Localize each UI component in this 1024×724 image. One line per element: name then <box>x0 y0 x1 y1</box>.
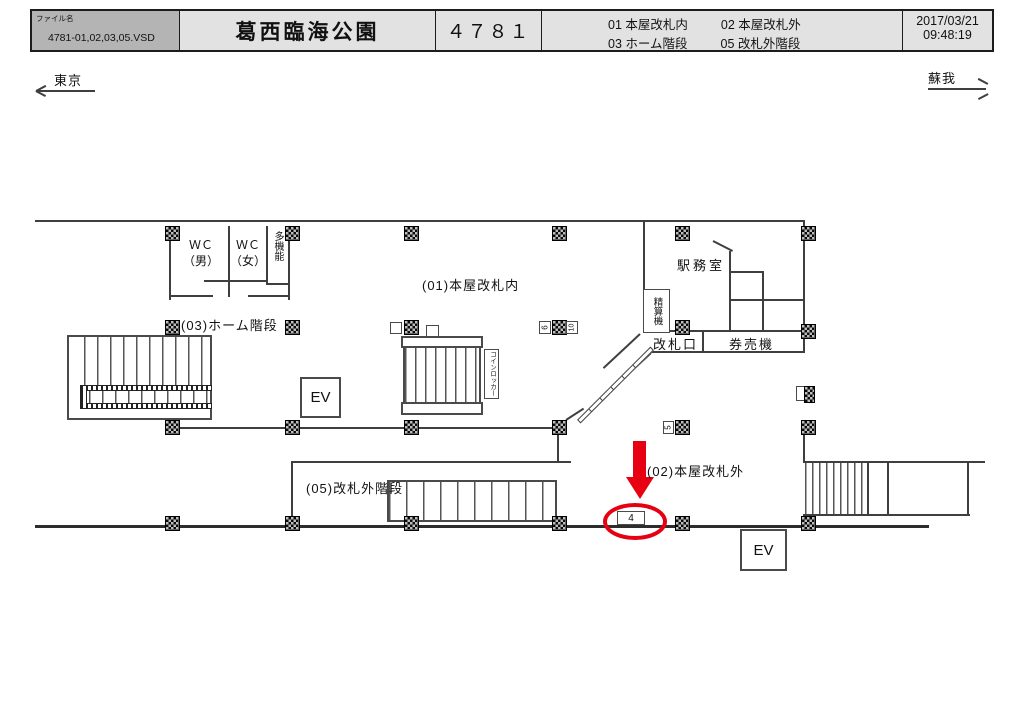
highlight-arrow-head <box>626 477 654 499</box>
ad-panel-box-6: 6 <box>539 321 551 334</box>
office-partition-wall <box>713 240 734 252</box>
highlight-ellipse <box>603 503 667 540</box>
column-pillar <box>552 226 567 241</box>
stair-landing-divider <box>867 461 869 516</box>
wc-women-line1: ＷＣ <box>226 237 270 253</box>
direction-left-arrow-line <box>38 90 95 92</box>
board-number: ４７８１ <box>436 11 542 50</box>
location-name: 改札外階段 <box>738 37 801 51</box>
office-partition-wall <box>729 271 764 273</box>
stair-handrail <box>80 403 212 409</box>
column-pillar <box>285 516 300 531</box>
column-pillar <box>552 516 567 531</box>
central-stairs-steps <box>403 348 481 403</box>
column-pillar <box>404 226 419 241</box>
location-name: 本屋改札外 <box>738 18 801 32</box>
direction-right-arrow-line <box>928 88 986 90</box>
direction-right-label: 蘇我 <box>928 68 956 87</box>
time-value: 09:48:19 <box>903 28 992 42</box>
station-office-label: 駅務室 <box>677 255 725 274</box>
direction-right-arrowhead <box>978 78 988 84</box>
datetime-cell: 2017/03/21 09:48:19 <box>903 11 992 50</box>
wc-wall <box>248 295 290 297</box>
file-name-cell: ファイル名 4781-01,02,03,05.VSD <box>32 11 180 50</box>
column-pillar <box>801 226 816 241</box>
ad-panel-number: 10 <box>568 324 575 332</box>
highlight-arrow-shaft <box>633 441 646 477</box>
location-code: 03 <box>608 37 622 51</box>
column-pillar <box>552 420 567 435</box>
ticket-gate-machine <box>632 347 654 369</box>
wall <box>803 432 805 463</box>
location-code: 01 <box>608 18 622 32</box>
coin-locker-box: コインロッカー <box>484 349 499 399</box>
wall <box>557 433 559 463</box>
wall <box>35 220 805 222</box>
central-stairs-top-landing <box>401 336 483 348</box>
column-pillar <box>165 320 180 335</box>
ad-panel-number: 6 <box>540 325 549 329</box>
fare-adjustment-label: 精算機 <box>650 297 664 326</box>
station-name: 葛西臨海公園 <box>180 11 436 50</box>
area-label-05: (05)改札外階段 <box>306 478 403 497</box>
date-value: 2017/03/21 <box>903 14 992 28</box>
stair-landing-divider <box>887 461 889 516</box>
fare-adjustment-machine: 精算機 <box>643 289 670 333</box>
ad-panel-box-10: 10 <box>566 321 578 334</box>
column-pillar <box>404 320 419 335</box>
wall <box>643 220 645 291</box>
office-partition-wall <box>729 251 731 332</box>
wc-men-label: ＷＣ （男） <box>175 237 227 269</box>
wall <box>702 330 704 353</box>
column-pillar <box>675 420 690 435</box>
wall <box>166 427 566 429</box>
wall <box>291 461 571 463</box>
column-pillar <box>675 226 690 241</box>
column-pillar <box>165 420 180 435</box>
street-stairs-steps <box>805 463 865 514</box>
wc-wall <box>266 283 290 285</box>
area-label-02: (02)本屋改札外 <box>647 461 744 480</box>
ad-panel-box <box>390 322 402 334</box>
column-pillar <box>675 516 690 531</box>
ad-panel-box <box>426 325 439 337</box>
wc-women-line2: （女） <box>226 253 270 269</box>
file-name-value: 4781-01,02,03,05.VSD <box>48 32 155 44</box>
station-map-page: ファイル名 4781-01,02,03,05.VSD 葛西臨海公園 ４７８１ 0… <box>0 0 1024 724</box>
direction-right-arrowhead <box>978 93 988 99</box>
column-pillar <box>404 516 419 531</box>
ticket-gate-label: 改札口 <box>653 334 698 353</box>
wc-men-line2: （男） <box>175 253 227 269</box>
multi-function-toilet-label: 多機能 <box>270 231 285 261</box>
office-partition-wall <box>762 271 764 332</box>
title-block: ファイル名 4781-01,02,03,05.VSD 葛西臨海公園 ４７８１ 0… <box>30 9 994 52</box>
wall-sign-hatch <box>804 386 815 403</box>
wc-men-line1: ＷＣ <box>175 237 227 253</box>
column-pillar <box>285 226 300 241</box>
office-partition-wall <box>729 299 805 301</box>
column-pillar <box>165 516 180 531</box>
area-label-03: (03)ホーム階段 <box>181 315 278 334</box>
wall <box>967 461 969 516</box>
column-pillar <box>801 516 816 531</box>
ticket-machine-label: 券売機 <box>729 334 774 353</box>
ad-panel-box-5: 5 <box>663 421 674 434</box>
central-stairs-bottom-landing <box>401 402 483 415</box>
column-pillar <box>801 324 816 339</box>
wc-wall <box>204 280 268 282</box>
column-pillar <box>404 420 419 435</box>
wc-wall <box>169 295 213 297</box>
column-pillar <box>285 320 300 335</box>
direction-left-label: 東京 <box>54 70 82 89</box>
column-pillar <box>552 320 567 335</box>
location-name: ホーム階段 <box>625 37 687 51</box>
column-pillar <box>801 420 816 435</box>
coin-locker-label: コインロッカー <box>487 351 497 397</box>
wc-women-label: ＷＣ （女） <box>226 237 270 269</box>
location-code: 05 <box>721 37 735 51</box>
location-name: 本屋改札内 <box>625 18 688 32</box>
location-code: 02 <box>721 18 735 32</box>
stair-handrail <box>80 385 87 409</box>
column-pillar <box>675 320 690 335</box>
elevator-paid-area: EV <box>300 377 341 418</box>
file-name-label: ファイル名 <box>36 13 74 24</box>
elevator-unpaid-area: EV <box>740 529 787 571</box>
area-label-01: (01)本屋改札内 <box>422 275 519 294</box>
location-line-2: 03 ホーム階段 05 改札外階段 <box>608 33 800 52</box>
platform-stairs-upper-flight <box>84 337 212 385</box>
location-list-cell: 01 本屋改札内 02 本屋改札外 03 ホーム階段 05 改札外階段 <box>542 11 903 50</box>
platform-stairs-lower-flight <box>89 391 212 403</box>
column-pillar <box>285 420 300 435</box>
location-line-1: 01 本屋改札内 02 本屋改札外 <box>608 14 801 33</box>
ad-panel-number: 5 <box>664 425 673 429</box>
